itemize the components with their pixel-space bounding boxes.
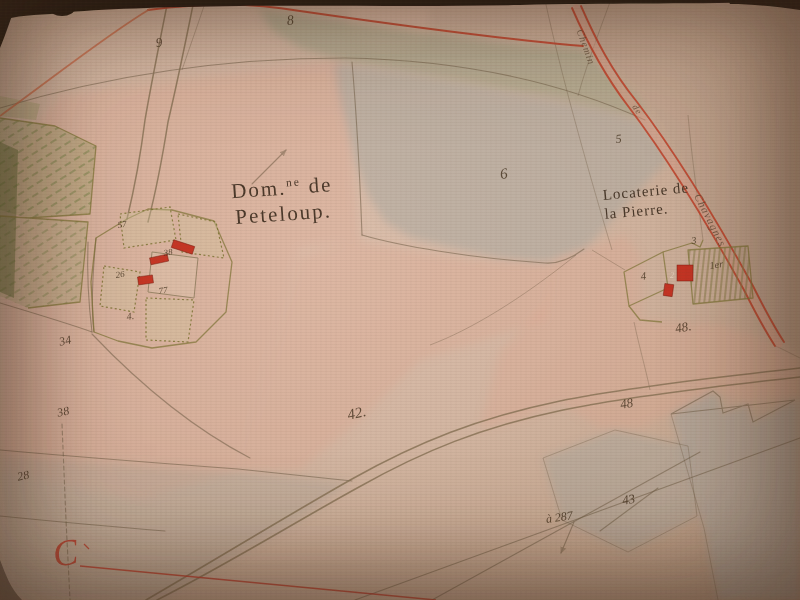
parcel-number: 77 <box>158 286 168 296</box>
parcel-number: 43 <box>621 492 636 507</box>
domaine-peteloup-label: Dom.ne de Peteloup. <box>206 170 359 233</box>
parcel-number: 38 <box>56 405 70 419</box>
parcel-number: 4. <box>126 311 135 322</box>
parcel-number: à 287 <box>545 509 573 525</box>
parcel-number: 8 <box>286 13 294 28</box>
parcel-number: 2 <box>670 272 674 280</box>
domaine-label-superscript: ne <box>286 175 302 188</box>
parcel-number: 6 <box>499 166 509 182</box>
parcel-number: 48. <box>674 319 692 335</box>
parcel-number: 9 <box>155 35 163 49</box>
road-name-label: de <box>630 103 643 117</box>
parcel-number: 38 <box>163 248 173 258</box>
parcel-number: 26 <box>115 270 125 280</box>
road-name-label: Chemin <box>575 28 597 66</box>
label-layer: Dom.ne de Peteloup. Locaterie de la Pier… <box>0 0 800 600</box>
parcel-number: 34 <box>58 334 72 348</box>
section-letter: C <box>50 529 81 578</box>
cadastral-map-photo: Dom.ne de Peteloup. Locaterie de la Pier… <box>0 0 800 600</box>
parcel-number: 3 <box>691 235 697 245</box>
parcel-number: 48 <box>619 396 634 411</box>
parcel-number: 4 <box>640 270 647 282</box>
parcel-number: 42. <box>346 404 367 423</box>
road-name-label: Chavagnes <box>692 192 728 249</box>
parcel-number: 5 <box>615 132 622 145</box>
parcel-number: 1er <box>709 259 724 271</box>
parcel-number: 28 <box>16 469 30 483</box>
parcel-number: 57 <box>117 220 127 230</box>
locaterie-pierre-label: Locaterie de la Pierre. <box>602 178 691 223</box>
